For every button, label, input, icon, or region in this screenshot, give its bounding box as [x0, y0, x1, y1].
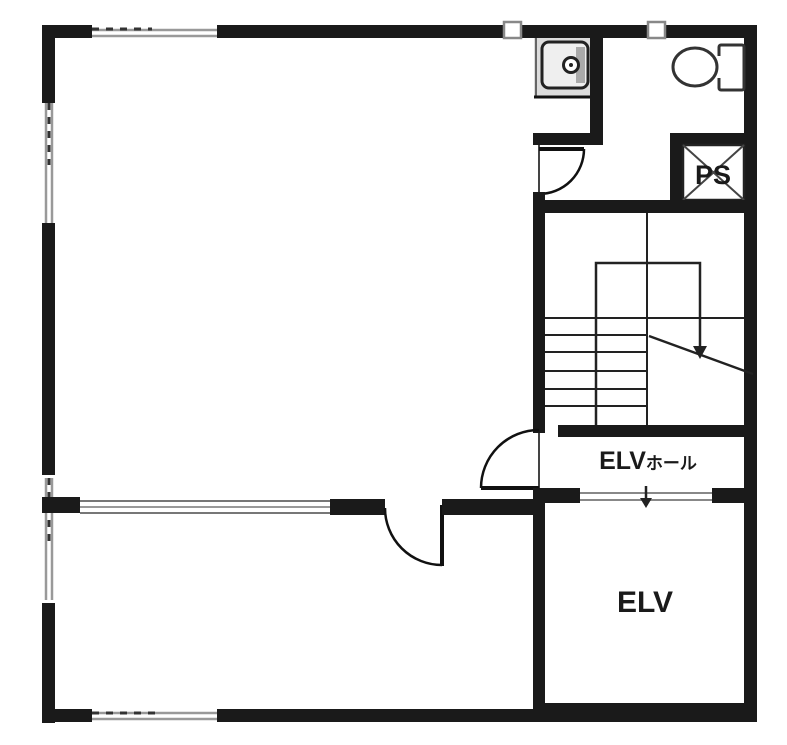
- elevator-hall: ELVホール: [533, 447, 757, 508]
- elevator-door-right-stub: [712, 488, 757, 503]
- wall-above-stairs: [533, 200, 757, 213]
- floor-plan-canvas: PS ELVホール: [0, 0, 787, 745]
- wall-below-stairs: [558, 425, 757, 437]
- wall-top-main-segment: [217, 25, 757, 38]
- windows: [46, 29, 217, 719]
- toilet-room-left-wall: [590, 38, 603, 145]
- elv-hall-door-swing-arc: [481, 430, 539, 488]
- wall-left-lower-segment: [42, 603, 55, 723]
- stairwell: [545, 213, 757, 437]
- elv-hall-label-suffix: ホール: [646, 454, 697, 473]
- sink-drain-center: [569, 63, 573, 67]
- wall-left-middle-segment: [42, 223, 55, 475]
- ps-label: PS: [695, 160, 731, 190]
- wall-vent-icon: [504, 22, 521, 38]
- elevator-label: ELV: [617, 586, 673, 619]
- ps-top-wall: [670, 133, 757, 145]
- partition-middle-wall: [330, 499, 385, 515]
- wall-bottom-left-segment: [42, 709, 92, 722]
- partition-left-stub: [42, 497, 80, 513]
- room-partition: [42, 497, 545, 566]
- toilet-icon: [673, 45, 744, 90]
- elevator-shaft: ELV: [533, 503, 757, 717]
- sink-icon: [542, 42, 588, 88]
- elv-hall-label-main: ELV: [599, 447, 646, 475]
- elevator-shaft-bottom-wall: [533, 703, 757, 717]
- main-room-right-wall: [533, 192, 545, 433]
- elv-hall-label: ELVホール: [599, 447, 697, 475]
- toilet-bowl: [673, 48, 717, 86]
- wall-vent-icon: [648, 22, 665, 38]
- floor-plan: PS ELVホール: [0, 0, 787, 745]
- toilet-door-swing-arc: [539, 149, 584, 194]
- sink-alcove: [534, 38, 590, 98]
- elevator-door-arrow-icon: [640, 486, 652, 508]
- elevator-shaft-left-wall: [533, 503, 545, 717]
- wall-left-upper-segment: [42, 25, 55, 103]
- partition-right-wall: [442, 499, 545, 515]
- elevator-door-arrow-head: [640, 498, 652, 508]
- partition-door-swing-arc: [385, 508, 442, 565]
- wall-below-sink: [533, 133, 603, 145]
- core-west-wall: [481, 192, 545, 517]
